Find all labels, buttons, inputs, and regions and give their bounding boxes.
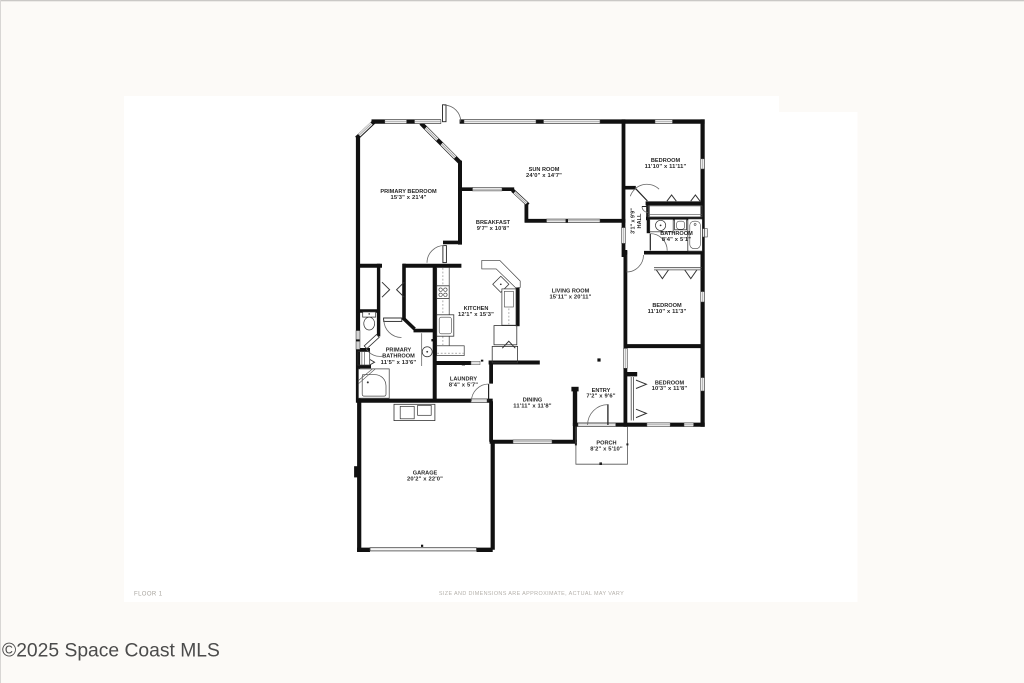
- svg-text:24'0" x 14'7": 24'0" x 14'7": [526, 173, 562, 179]
- svg-text:15'3" x 21'4": 15'3" x 21'4": [391, 195, 427, 201]
- svg-text:12'1" x 15'3": 12'1" x 15'3": [458, 312, 494, 318]
- svg-text:11'10" x 11'11": 11'10" x 11'11": [645, 164, 687, 170]
- svg-text:FLOOR 1: FLOOR 1: [134, 592, 163, 598]
- svg-text:7'2" x 9'6": 7'2" x 9'6": [586, 394, 615, 400]
- svg-text:11'5" x 13'6": 11'5" x 13'6": [381, 360, 417, 366]
- svg-text:GARAGE: GARAGE: [413, 471, 438, 477]
- svg-text:3'1" x 9'9": 3'1" x 9'9": [630, 208, 636, 234]
- svg-text:HALL: HALL: [637, 213, 643, 228]
- svg-text:8'4" x 5'1": 8'4" x 5'1": [662, 237, 691, 243]
- svg-text:BATHROOM: BATHROOM: [382, 354, 415, 360]
- svg-text:20'2" x 22'0": 20'2" x 22'0": [407, 477, 443, 483]
- svg-text:15'11" x 20'11": 15'11" x 20'11": [549, 295, 591, 301]
- svg-text:©2025 Space Coast MLS: ©2025 Space Coast MLS: [2, 641, 220, 662]
- svg-text:8'4" x 5'7": 8'4" x 5'7": [449, 382, 478, 388]
- svg-text:PRIMARY BEDROOM: PRIMARY BEDROOM: [380, 189, 437, 195]
- svg-text:PRIMARY: PRIMARY: [386, 347, 412, 353]
- svg-text:SIZE AND DIMENSIONS ARE APPROX: SIZE AND DIMENSIONS ARE APPROXIMATE, ACT…: [439, 591, 624, 597]
- svg-text:11'11" x 11'8": 11'11" x 11'8": [513, 403, 552, 409]
- svg-text:11'10" x 11'3": 11'10" x 11'3": [648, 309, 687, 315]
- svg-text:10'3" x 11'8": 10'3" x 11'8": [652, 386, 688, 392]
- svg-text:8'2" x 5'10": 8'2" x 5'10": [590, 446, 623, 452]
- svg-text:9'7" x 10'8": 9'7" x 10'8": [477, 226, 510, 232]
